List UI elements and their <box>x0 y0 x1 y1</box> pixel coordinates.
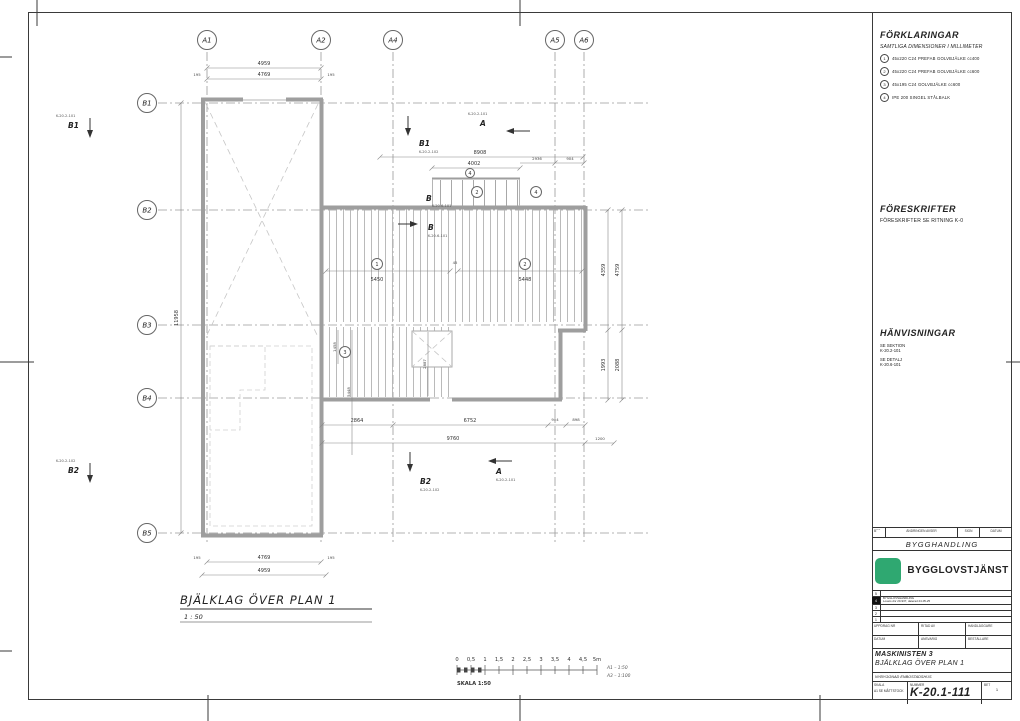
bet-cell: BET 1 <box>982 682 1012 704</box>
scalebar-tick: 2 <box>511 657 514 663</box>
field-handlaggare: HANDLÄGGARE <box>966 623 1012 635</box>
open-area-cross <box>206 104 318 526</box>
scale-cell: SKALA A1 SE MÅTTSTOCK <box>872 682 908 704</box>
grid-label-b4: B4 <box>142 395 151 403</box>
dim-195-bl: 195 <box>193 555 201 560</box>
dim-4002: 4002 <box>468 161 481 167</box>
dim-bottom-inner: 4769 <box>258 555 271 561</box>
grid-label-b1: B1 <box>142 100 151 108</box>
dim-898: 898 <box>572 417 580 422</box>
dim-1458: 1458 <box>332 342 337 352</box>
revision-header-row: BET ÄNDRINGEN AVSER SIGN DATUM <box>872 528 1012 538</box>
project-type: NYBYGGNAD ENBOSTADSHUS <box>875 675 931 679</box>
scalebar-label: SKALA 1:50 <box>457 681 491 687</box>
floor-opening <box>412 331 452 367</box>
company-name: BYGGLOVSTJÄNST <box>907 565 1008 576</box>
grid-bubbles-columns: A1 A2 A4 A5 A6 <box>198 31 594 50</box>
legend-item: 2 45x220 C24 PREFAB GOLVBJÄLKE cc600 <box>880 67 1008 76</box>
legend-item-number: 2 <box>880 67 889 76</box>
revision-note: BYGGLOVSHANDLING Lovets dnr 20-937, date… <box>881 597 1012 604</box>
scale-bar: 0 0,5 1 1,5 2 2,5 3 3,5 4 4,5 5m SKALA 1… <box>455 657 630 687</box>
regulations-section: FÖRESKRIFTER FÖRESKRIFTER SE RITNING K-0 <box>880 204 1008 224</box>
floor-plan-drawing: A1 A2 A4 A5 A6 B1 B2 B3 B4 B5 <box>0 0 1020 721</box>
drawing-scale: 1 : 50 <box>184 613 203 621</box>
band-ref-3: 3 <box>343 350 346 356</box>
legend-item: 1 45x220 C24 PREFAB GOLVBJÄLKE cc400 <box>880 54 1008 63</box>
grid-label-b2: B2 <box>142 207 152 215</box>
legend-item-number: 4 <box>880 93 889 102</box>
regulations-text: FÖRESKRIFTER SE RITNING K-0 <box>880 218 1008 224</box>
field-datum: DATUM <box>872 636 919 648</box>
legend-item-number: 1 <box>880 54 889 63</box>
drawing-title-block: BJÄLKLAG ÖVER PLAN 1 1 : 50 <box>180 591 372 622</box>
drawing-sheet: { "plan": { "title": "BJÄLKLAG ÖVER PLAN… <box>0 0 1020 721</box>
grid-label-a4: A4 <box>387 37 397 45</box>
scalebar-tick: 0 <box>455 657 458 663</box>
section-b2-label-bottom: B2 <box>420 477 431 486</box>
scalebar-tick: 5m <box>593 657 601 663</box>
dim-904-top: 904 <box>566 156 574 161</box>
dim-4759: 4759 <box>615 264 621 277</box>
section-a-ref-top: K-20.2-101 <box>468 112 487 116</box>
section-a-ref-bottom: K-20.2-101 <box>496 478 515 482</box>
grid-label-a5: A5 <box>549 37 560 45</box>
legend-item-text: 45x220 C24 PREFAB GOLVBJÄLKE cc600 <box>892 69 980 74</box>
bygglovstjanst-logo-icon <box>875 558 901 584</box>
regulations-title: FÖRESKRIFTER <box>880 204 1008 214</box>
logo-glyph <box>872 528 888 544</box>
section-b2-label-left: B2 <box>68 466 79 475</box>
joist-ref-1: 1 <box>375 262 378 268</box>
legend-subtitle: SAMTLIGA DIMENSIONER I MILLIMETER <box>880 44 1008 50</box>
strip-ref-2: 2 <box>475 190 478 196</box>
joist-ref-2: 2 <box>523 262 526 268</box>
revision-table: 5 4 BYGGLOVSHANDLING Lovets dnr 20-937, … <box>872 591 1012 623</box>
revision-letter: 2 <box>872 611 881 616</box>
section-a-label-bottom: A <box>495 467 502 476</box>
status-banner: BYGGHANDLING <box>872 538 1012 551</box>
dim-top-inner: 4769 <box>258 72 271 78</box>
dim-1200: 1200 <box>595 436 605 441</box>
grid-label-b5: B5 <box>142 530 152 538</box>
grid-label-a2: A2 <box>315 37 326 45</box>
grid-label-a1: A1 <box>201 37 211 45</box>
revision-letter: 1 <box>872 617 881 622</box>
revision-letter-active: 4 <box>872 597 881 604</box>
section-b1-label-left: B1 <box>68 121 79 130</box>
legend-item-text: 45x195 C24 GOLVBJÄLKE cc600 <box>892 82 960 87</box>
field-ansvarig: ANSVARIG <box>919 636 966 648</box>
fields-row-2: DATUM ANSVARIG BESTÄLLARE <box>872 636 1012 649</box>
detail-b-ref-upper: K-20.6-101 <box>432 204 451 208</box>
legend-item-number: 3 <box>880 80 889 89</box>
dim-2887: 2887 <box>422 359 427 369</box>
section-b1-ref-left: K-20.2-101 <box>56 114 75 118</box>
revision-letter: 3 <box>872 605 881 610</box>
title-block: BET ÄNDRINGEN AVSER SIGN DATUM BYGGHANDL… <box>872 527 1012 701</box>
dim-195-br: 195 <box>327 555 335 560</box>
rev-header-datum: DATUM <box>980 528 1012 537</box>
info-panel: FÖRKLARINGAR SAMTLIGA DIMENSIONER I MILL… <box>872 12 1012 700</box>
reference-value: K-20.6-101 <box>880 362 1008 367</box>
scale-value: A1 SE MÅTTSTOCK <box>874 689 905 693</box>
dim-8908: 8908 <box>474 150 487 156</box>
dim-45: 45 <box>453 260 458 265</box>
references-section: HÄNVISNINGAR SE SEKTION K-20.2-101 SE DE… <box>880 328 1008 367</box>
section-b2-ref-bottom: K-20.2-102 <box>420 488 439 492</box>
dim-195-right: 195 <box>327 72 335 77</box>
scale-label: SKALA <box>874 683 905 687</box>
scalebar-tick: 0,5 <box>467 657 475 663</box>
scalebar-tick: 1,5 <box>495 657 503 663</box>
dim-5448: 5448 <box>519 277 532 283</box>
fields-row-1: UPPDRAG NR RITAD AV HANDLÄGGARE <box>872 623 1012 636</box>
bet-value: 1 <box>984 687 1010 692</box>
revision-note <box>881 591 1012 596</box>
legend-item-text: 45x220 C24 PREFAB GOLVBJÄLKE cc400 <box>892 56 980 61</box>
number-row: SKALA A1 SE MÅTTSTOCK NUMMER K-20.1-111 … <box>872 682 1012 704</box>
dim-195-left: 195 <box>193 72 201 77</box>
dim-2088: 2088 <box>615 359 621 372</box>
scalebar-tick: 1 <box>483 657 486 663</box>
project-name: MASKINISTEN 3 <box>875 651 1009 658</box>
scalebar-a1: A1 – 1:50 <box>606 665 628 671</box>
dim-bottom-outer: 4959 <box>258 568 271 574</box>
section-b1-label-top: B1 <box>419 139 430 148</box>
top-ref-4: 4 <box>468 171 471 177</box>
rev-header-avser: ÄNDRINGEN AVSER <box>886 528 958 537</box>
section-b2-ref-left: K-20.2-102 <box>56 459 75 463</box>
legend-section: FÖRKLARINGAR SAMTLIGA DIMENSIONER I MILL… <box>880 30 1008 102</box>
detail-b-label-lower: B <box>428 223 434 232</box>
number-cell: NUMMER K-20.1-111 <box>908 682 982 704</box>
revision-note <box>881 605 1012 610</box>
scalebar-tick: 3 <box>539 657 542 663</box>
drawing-title: BJÄLKLAG ÖVER PLAN 1 <box>180 591 337 607</box>
field-bestallare: BESTÄLLARE <box>966 636 1012 648</box>
joist-fields <box>324 180 583 397</box>
dim-1993: 1993 <box>601 359 607 372</box>
company-logo-row: BYGGLOVSTJÄNST <box>872 551 1012 591</box>
rev-header-sign: SIGN <box>958 528 980 537</box>
status-text: BYGGHANDLING <box>906 540 978 549</box>
revision-row: 4 BYGGLOVSHANDLING Lovets dnr 20-937, da… <box>872 597 1012 605</box>
dim-5448b: 5448 <box>346 387 351 397</box>
field-ritad-av: RITAD AV <box>919 623 966 635</box>
revision-note-line2: Lovets dnr 20-937, daterad 24-05-25 <box>883 600 1010 603</box>
section-b1-ref-top: K-20.2-102 <box>419 150 438 154</box>
dim-6752: 6752 <box>464 418 477 424</box>
field-uppdrag-nr: UPPDRAG NR <box>872 623 919 635</box>
dim-11958: 11958 <box>174 310 180 326</box>
grid-label-b3: B3 <box>142 322 151 330</box>
section-a-label-top: A <box>479 119 486 128</box>
dim-904-bottom: 904 <box>551 417 559 422</box>
legend-item-text: IPE 200 SINGEL STÅLBALK <box>892 95 950 100</box>
dim-9760: 9760 <box>447 436 460 442</box>
dim-2936: 2936 <box>532 156 542 161</box>
references-title: HÄNVISNINGAR <box>880 328 1008 338</box>
dim-5450: 5450 <box>371 277 384 283</box>
detail-b-ref-lower: K-20.6-101 <box>428 234 447 238</box>
revision-note <box>881 611 1012 616</box>
dim-4359: 4359 <box>601 264 607 277</box>
revision-note <box>881 617 1012 622</box>
project-block: MASKINISTEN 3 BJÄLKLAG ÖVER PLAN 1 <box>872 649 1012 673</box>
legend-title: FÖRKLARINGAR <box>880 30 1008 40</box>
grid-bubbles-rows: B1 B2 B3 B4 B5 <box>138 94 157 543</box>
dim-2864: 2864 <box>351 418 364 424</box>
detail-b-label-upper: B <box>426 194 432 203</box>
project-type-row: NYBYGGNAD ENBOSTADSHUS <box>872 673 1012 682</box>
scalebar-tick: 3,5 <box>551 657 559 663</box>
sheet-border <box>29 13 1012 700</box>
grid-label-a6: A6 <box>578 37 589 45</box>
project-drawing-name: BJÄLKLAG ÖVER PLAN 1 <box>875 660 1009 667</box>
scalebar-tick: 2,5 <box>523 657 531 663</box>
revision-letter: 5 <box>872 591 881 596</box>
legend-item: 3 45x195 C24 GOLVBJÄLKE cc600 <box>880 80 1008 89</box>
scalebar-tick: 4 <box>567 657 571 663</box>
scalebar-tick: 4,5 <box>579 657 587 663</box>
drawing-number: K-20.1-111 <box>910 687 979 699</box>
scalebar-a3: A3 – 1:100 <box>606 673 631 679</box>
legend-item: 4 IPE 200 SINGEL STÅLBALK <box>880 93 1008 102</box>
dim-top-outer: 4959 <box>258 61 271 67</box>
reference-value: K-20.2-101 <box>880 348 1008 353</box>
strip-ref-4: 4 <box>534 190 537 196</box>
